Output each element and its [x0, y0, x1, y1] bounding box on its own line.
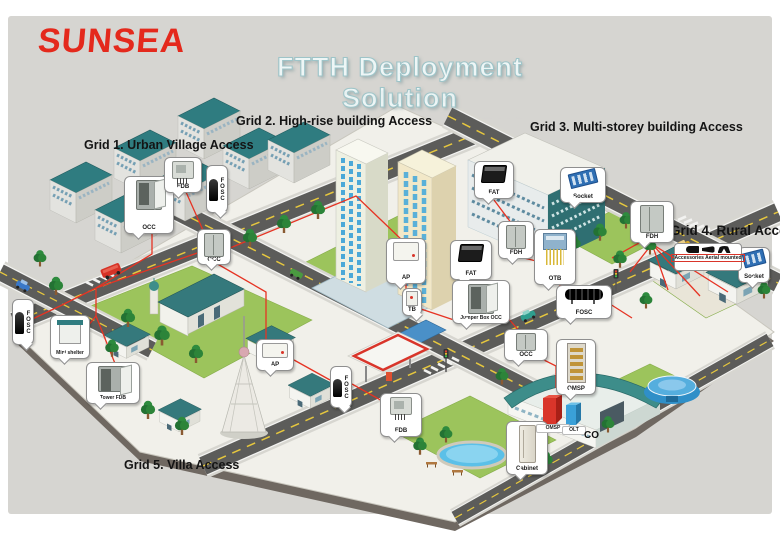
callout-socket-2: Socket — [738, 247, 770, 283]
callout-label: FDB — [177, 184, 189, 190]
callout-label: Cabinet — [516, 466, 538, 472]
grid5-label: Grid 5. Villa Access — [124, 458, 239, 472]
callout-label: TB — [408, 307, 416, 313]
cabinet-open-icon — [468, 284, 494, 314]
callout-jumper-occ: Jumper Box OCC — [452, 280, 510, 324]
cabinet-icon — [506, 225, 526, 249]
grid1-label: Grid 1. Urban Village Access — [84, 138, 254, 152]
cylinder-closure-icon — [565, 289, 603, 300]
callout-label: AP — [402, 275, 410, 281]
callout-mini-shelter: Mini shelter — [50, 315, 90, 359]
callout-fat-2: FAT — [474, 161, 514, 199]
callout-ap-2: AP — [256, 339, 294, 371]
callout-occ-3: OCC — [504, 329, 548, 361]
callout-label: Tower FDB — [100, 396, 126, 401]
callout-fosc-3: FOSC — [330, 366, 352, 408]
aerial-accessories-label: Accessories Aerial mounted — [671, 254, 744, 262]
callout-label: OCC — [519, 352, 532, 358]
callout-label: FAT — [489, 190, 500, 196]
aerial-accessories-box: Accessories Aerial mounted — [674, 243, 742, 271]
cabinet-icon — [516, 333, 536, 351]
callout-fosc-4: FOSC — [12, 299, 34, 345]
dome-closure-icon — [15, 312, 24, 334]
grid3-label: Grid 3. Multi-storey building Access — [530, 120, 743, 134]
callout-label: Jumper Box OCC — [460, 316, 501, 321]
tension-clamp-icon — [702, 246, 715, 253]
omsp-monolith — [543, 395, 562, 424]
callout-label: FOSC — [26, 311, 32, 335]
flat-box-icon — [262, 343, 288, 358]
cabinet-icon — [204, 233, 224, 257]
callout-fdb-2: FDB — [380, 393, 422, 437]
callout-fdb-1: FDB — [164, 157, 202, 193]
callout-label: OTB — [549, 276, 562, 282]
black-box-icon — [481, 165, 508, 183]
grid4-label: Grid 4. Rural Access — [670, 223, 780, 238]
callout-label: Socket — [573, 194, 593, 200]
cabinet-icon — [640, 205, 664, 233]
aerial-accessory-icons — [686, 246, 731, 253]
cabinet-open-icon — [98, 366, 128, 392]
page-title-reflection: FTTH Deployment Solution — [230, 85, 570, 138]
mini-box-icon — [406, 291, 418, 306]
shelter-icon — [59, 324, 81, 344]
ftth-deployment-poster: SUNSEA FTTH Deployment Solution FTTH Dep… — [0, 0, 780, 534]
callout-label: OCC — [142, 225, 155, 231]
callout-tower-fdb: Tower FDB — [86, 362, 140, 404]
callout-label: FDH — [646, 234, 658, 240]
callout-label: FOSC — [344, 376, 350, 400]
callout-label: OCC — [207, 257, 220, 263]
dome-closure-icon — [333, 379, 342, 397]
tall-cabinet-icon — [519, 425, 536, 463]
fiber-box-icon — [543, 233, 567, 250]
callout-occ-2: OCC — [197, 229, 231, 265]
callout-label: FOSC — [576, 310, 593, 316]
callout-label: FAT — [466, 271, 477, 277]
suspension-clamp-icon — [686, 246, 699, 253]
callout-label: Mini shelter — [56, 351, 84, 356]
callout-socket-1: Socket — [560, 167, 606, 203]
callout-label: FDB — [395, 428, 407, 434]
wall-box-icon — [172, 161, 194, 179]
callout-fdh-1: FDH — [498, 221, 534, 259]
callout-label: Socket — [744, 274, 764, 280]
callout-label: FOSC — [220, 178, 226, 202]
pond — [438, 442, 506, 468]
co-label: CO — [584, 430, 599, 441]
callout-ap-1: AP — [386, 238, 426, 284]
callout-label: FDH — [510, 250, 522, 256]
wall-box-icon — [390, 397, 412, 415]
callout-fat-1: FAT — [450, 240, 492, 280]
rack-icon — [567, 343, 586, 383]
cabinet-open-icon — [136, 180, 162, 210]
flat-box-icon — [393, 242, 419, 261]
pole-bracket-icon — [718, 246, 731, 253]
callout-fosc-2: FOSC — [556, 285, 612, 319]
callout-fosc-1: FOSC — [206, 165, 228, 213]
callout-fdh-2: FDH — [630, 201, 674, 243]
callout-tb-1: TB — [402, 288, 422, 316]
olt-tag: OLT — [562, 426, 586, 435]
sunsea-logo: SUNSEA — [36, 22, 187, 61]
callout-omsp: OMSP — [556, 339, 596, 395]
blue-board-icon — [742, 249, 767, 269]
black-box-icon — [458, 244, 485, 262]
olt-monolith — [566, 403, 581, 426]
grid2-label: Grid 2. High-rise building Access — [236, 114, 432, 128]
dome-closure-icon — [209, 179, 218, 201]
callout-label: AP — [271, 362, 279, 368]
stadium — [644, 376, 700, 404]
blue-board-icon — [568, 168, 599, 189]
callout-otb-1: OTB — [534, 229, 576, 285]
callout-label: OMSP — [567, 386, 585, 392]
